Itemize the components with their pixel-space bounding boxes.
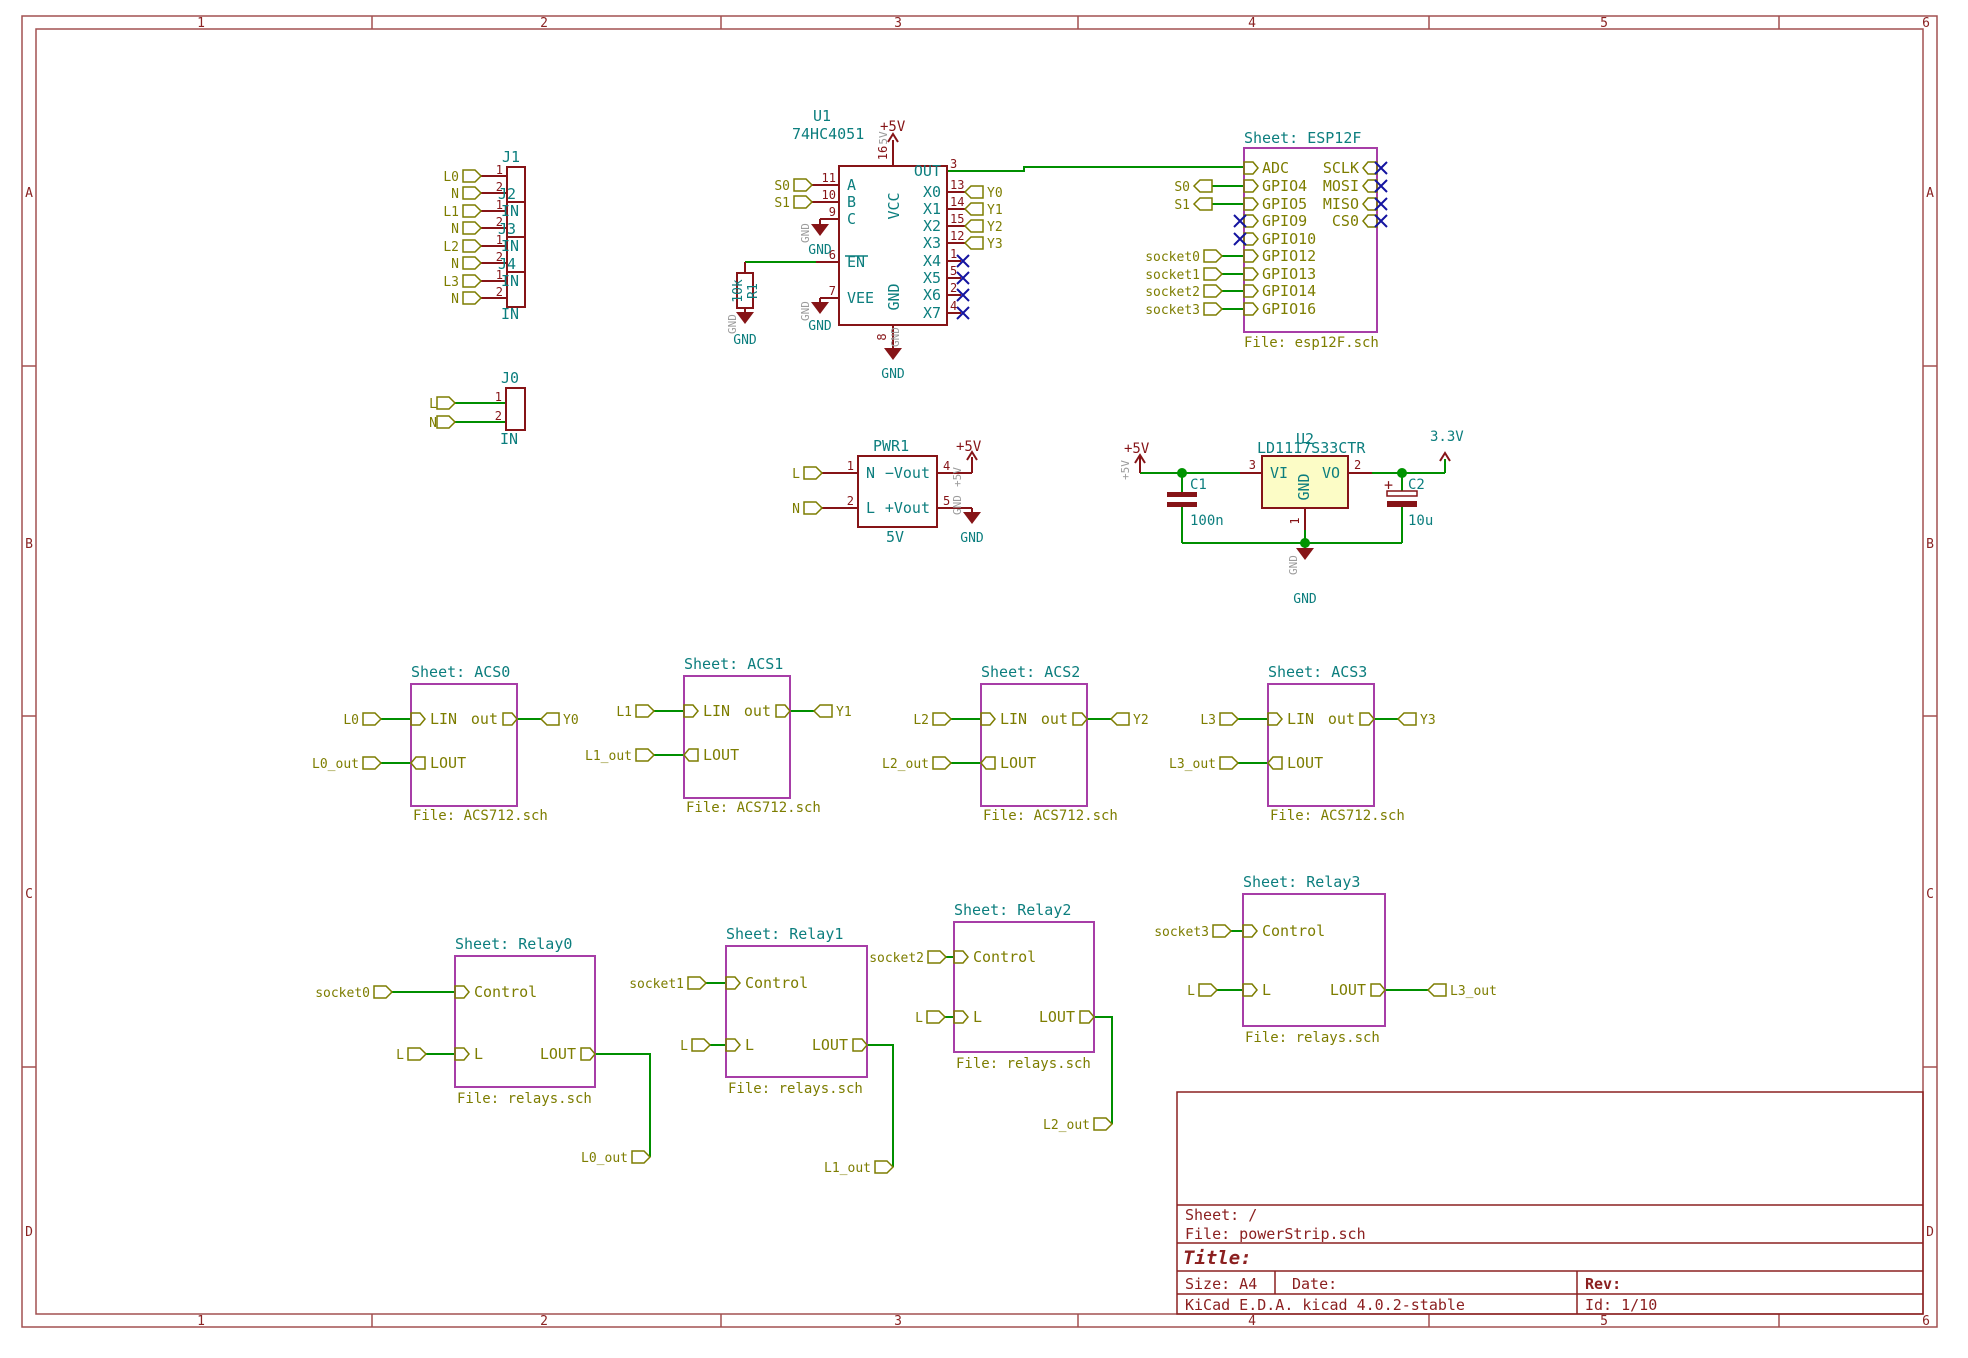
frame-outer	[22, 16, 1937, 1327]
hlabel-l-j0: L	[429, 397, 437, 412]
hier-label-glyph	[804, 467, 822, 479]
relay2-pin-control: Control	[973, 948, 1036, 966]
sheet-relay3-name: Sheet: Relay3	[1243, 873, 1360, 891]
border-row-a-right: A	[1926, 186, 1934, 201]
sheet-relay3-box	[1243, 894, 1385, 1026]
hlabel-l-relay2: L	[915, 1011, 923, 1026]
hier-label-glyph	[1204, 303, 1222, 315]
hier-label-glyph	[965, 186, 983, 198]
j2-pin2-num: 2	[496, 215, 503, 229]
sheet-acs0-file: File: ACS712.sch	[413, 808, 548, 824]
hlabel-l2: L2	[443, 240, 459, 255]
wire-relay0-lout	[595, 1054, 650, 1157]
hlabel-n-pwr1: N	[792, 502, 800, 517]
relay2-pin-lout: LOUT	[1039, 1008, 1075, 1026]
hier-label-glyph	[965, 220, 983, 232]
hier-label-glyph	[408, 1048, 426, 1060]
hlabel-s0-u1: S0	[774, 179, 790, 194]
sheet-pin-glyph	[1244, 198, 1258, 210]
relay1-pin-lout: LOUT	[812, 1036, 848, 1054]
sheet-relay0-file: File: relays.sch	[457, 1091, 592, 1107]
hier-label-glyph	[688, 977, 706, 989]
hlabel-l-relay1: L	[680, 1039, 688, 1054]
sheet-acs1-name: Sheet: ACS1	[684, 655, 783, 673]
pwr1-ghost-5v: +5V	[951, 467, 964, 487]
hlabel-l1out-acs: L1_out	[585, 749, 632, 764]
sheet-pin-glyph	[684, 749, 698, 761]
c2-ref: C2	[1408, 477, 1425, 493]
hlabel-socket2-relay: socket2	[869, 951, 924, 966]
c1-plate-bottom	[1167, 502, 1197, 507]
hlabel-socket1-relay: socket1	[629, 977, 684, 992]
hier-label-glyph	[1204, 285, 1222, 297]
hlabel-y2-acs: Y2	[1133, 713, 1149, 728]
hlabel-socket2-esp: socket2	[1145, 285, 1200, 300]
u2-num-1: 1	[1288, 517, 1302, 524]
hlabel-l1-acs: L1	[616, 705, 632, 720]
u2-pin-vo: VO	[1322, 464, 1340, 482]
hlabel-n-2: N	[451, 222, 459, 237]
hier-label-glyph	[437, 416, 455, 428]
esp-pin-sclk: SCLK	[1323, 159, 1359, 177]
u1-gnd-c: GND	[808, 243, 832, 258]
pwr1-value: 5V	[886, 528, 904, 546]
u1-num-11: 11	[822, 171, 836, 185]
j4-pin1-num: 1	[496, 268, 503, 282]
border-col-3-top: 3	[894, 16, 902, 31]
sheet-relay2-name: Sheet: Relay2	[954, 901, 1071, 919]
sheet-relay1-file: File: relays.sch	[728, 1081, 863, 1097]
hlabel-l1: L1	[443, 205, 459, 220]
acs2-pin-lin: LIN	[1000, 710, 1027, 728]
u1-pin-x3: X3	[923, 234, 941, 252]
sheet-pin-glyph	[503, 713, 517, 725]
pwr1-num-5: 5	[943, 494, 950, 508]
c1-value: 100n	[1190, 513, 1224, 529]
sheet-acs2-file: File: ACS712.sch	[983, 808, 1118, 824]
sheet-relay3-file: File: relays.sch	[1245, 1030, 1380, 1046]
hier-label-glyph	[965, 203, 983, 215]
u1-num-16: 16	[876, 146, 890, 160]
c2-plus: +	[1384, 476, 1393, 494]
pwr1-pin-mvout: −Vout	[885, 464, 930, 482]
u2-ghost-gnd: GND	[1287, 555, 1300, 575]
sheet-acs1-box	[684, 676, 790, 798]
j0-value: IN	[500, 430, 518, 448]
u1-num-9: 9	[829, 205, 836, 219]
hlabel-l3out-relay: L3_out	[1450, 984, 1497, 999]
title-block-outline	[1177, 1092, 1923, 1314]
r1-value: 10k	[731, 279, 746, 303]
u1-pin-x7: X7	[923, 304, 941, 322]
relay2-pin-l: L	[973, 1008, 982, 1026]
hlabel-socket1-esp: socket1	[1145, 268, 1200, 283]
sheet-pin-glyph	[776, 705, 790, 717]
hier-label-glyph	[463, 187, 481, 199]
esp-pin-mosi: MOSI	[1323, 177, 1359, 195]
hier-label-glyph	[1199, 984, 1217, 996]
u1-pin-x2: X2	[923, 217, 941, 235]
hier-label-glyph	[463, 170, 481, 182]
border-col-5-top: 5	[1600, 16, 1608, 31]
border-row-d-left: D	[25, 1225, 33, 1240]
sheet-acs2-box	[981, 684, 1087, 806]
r1-ghost-gnd: GND	[726, 314, 739, 334]
hlabel-socket0-relay: socket0	[315, 986, 370, 1001]
relay0-pin-l: L	[474, 1045, 483, 1063]
j0-body	[506, 388, 525, 430]
u1-gnd-bottom: GND	[881, 367, 905, 382]
esp-pin-gpio10: GPIO10	[1262, 230, 1316, 248]
relay0-pin-control: Control	[474, 983, 537, 1001]
esp-pin-gpio13: GPIO13	[1262, 265, 1316, 283]
sheet-pin-glyph	[726, 1039, 740, 1051]
hlabel-l2-acs: L2	[913, 713, 929, 728]
hlabel-y0-acs: Y0	[563, 713, 579, 728]
pwr1-gnd-symbol	[963, 512, 981, 524]
sheet-pin-glyph	[1268, 757, 1282, 769]
hier-label-glyph	[374, 986, 392, 998]
u1-num-12: 12	[950, 229, 964, 243]
sheet-acs0-name: Sheet: ACS0	[411, 663, 510, 681]
u1-pin-vee: VEE	[847, 289, 874, 307]
border-col-6-top: 6	[1922, 16, 1930, 31]
esp-pin-miso: MISO	[1323, 195, 1359, 213]
sheet-pin-glyph	[726, 977, 740, 989]
j1-value: IN	[501, 202, 519, 220]
hlabel-y1-u1: Y1	[987, 203, 1003, 218]
text-labels-layer: 123456123456ABCDABCDSheet: /File: powerS…	[25, 16, 1934, 1329]
u1-pin-out: OUT	[914, 162, 941, 180]
sheet-pin-glyph	[1243, 925, 1257, 937]
hier-label-glyph	[463, 292, 481, 304]
u1-num-14: 14	[950, 195, 964, 209]
hlabel-n-3: N	[451, 257, 459, 272]
pwr1-num-2: 2	[847, 494, 854, 508]
hier-label-glyph	[632, 1151, 650, 1163]
sheet-pin-glyph	[981, 757, 995, 769]
hlabel-n-j0: N	[429, 416, 437, 431]
hlabel-socket3-relay: socket3	[1154, 925, 1209, 940]
hlabel-l0-acs: L0	[343, 713, 359, 728]
title-block	[1177, 1092, 1923, 1314]
hier-label-glyph	[927, 1011, 945, 1023]
hlabel-y3-u1: Y3	[987, 237, 1003, 252]
junction-c2	[1397, 468, 1407, 478]
pwr1-num-1: 1	[847, 459, 854, 473]
u1-value: 74HC4051	[792, 125, 864, 143]
relay3-pin-lout: LOUT	[1330, 981, 1366, 999]
u2-value: LD1117S33CTR	[1257, 439, 1366, 457]
sheet-acs0-box	[411, 684, 517, 806]
acs0-pin-lout: LOUT	[430, 754, 466, 772]
relay1-pin-l: L	[745, 1036, 754, 1054]
hlabel-y3-acs: Y3	[1420, 713, 1436, 728]
hlabel-l-pwr1: L	[792, 467, 800, 482]
sheet-pin-glyph	[1363, 198, 1377, 210]
hlabel-n-1: N	[451, 187, 459, 202]
sheet-pin-glyph	[981, 713, 995, 725]
titleblock-size: Size: A4	[1185, 1275, 1257, 1293]
sheet-pin-glyph	[1244, 180, 1258, 192]
esp-pin-gpio12: GPIO12	[1262, 247, 1316, 265]
sheet-pin-glyph	[1371, 984, 1385, 996]
border-row-d-right: D	[1926, 1225, 1934, 1240]
u1-num-10: 10	[822, 188, 836, 202]
hlabel-l-relay3: L	[1187, 984, 1195, 999]
titleblock-rev: Rev:	[1585, 1275, 1621, 1293]
u2-ghost-5v: +5V	[1119, 460, 1132, 480]
hier-label-glyph	[1398, 713, 1416, 725]
u1-ghost-5v: 5V	[877, 131, 890, 145]
sheet-pin-glyph	[455, 986, 469, 998]
hlabel-s0-esp: S0	[1174, 180, 1190, 195]
hlabel-l2out-relay: L2_out	[1043, 1118, 1090, 1133]
sheet-acs2-name: Sheet: ACS2	[981, 663, 1080, 681]
hier-label-glyph	[463, 240, 481, 252]
pwr1-ref: PWR1	[873, 437, 909, 455]
j0-ref: J0	[501, 369, 519, 387]
u1-num-3: 3	[950, 157, 957, 171]
sheet-relay2-box	[954, 922, 1094, 1052]
acs0-pin-lin: LIN	[430, 710, 457, 728]
hier-label-glyph	[636, 749, 654, 761]
hier-label-glyph	[1094, 1118, 1112, 1130]
acs1-pin-out: out	[744, 702, 771, 720]
border-col-2-bot: 2	[540, 1314, 548, 1329]
hlabel-y0-u1: Y0	[987, 186, 1003, 201]
hier-label-glyph	[1194, 180, 1212, 192]
u1-num-1: 1	[950, 247, 957, 261]
hier-label-glyph	[636, 705, 654, 717]
relay0-pin-lout: LOUT	[540, 1045, 576, 1063]
pwr1-pin-pvout: +Vout	[885, 499, 930, 517]
hlabel-socket0-esp: socket0	[1145, 250, 1200, 265]
sheet-pin-glyph	[1268, 713, 1282, 725]
u2-pin-vi: VI	[1270, 464, 1288, 482]
j1-pin2-num: 2	[496, 180, 503, 194]
titleblock-title: Title:	[1183, 1247, 1252, 1269]
esp-pin-gpio14: GPIO14	[1262, 282, 1316, 300]
u1-pin-b: B	[847, 193, 856, 211]
border-col-1-top: 1	[197, 16, 205, 31]
u1-ref: U1	[813, 107, 831, 125]
r1-gnd: GND	[733, 333, 757, 348]
sheet-pin-glyph	[1073, 713, 1087, 725]
c2-plate-bottom	[1387, 501, 1417, 507]
sheet-relay1-box	[726, 946, 867, 1077]
hier-label-glyph	[692, 1039, 710, 1051]
sheet-relay0-box	[455, 956, 595, 1087]
junction-c1	[1177, 468, 1187, 478]
sheet-pin-glyph	[1244, 303, 1258, 315]
hlabel-l3-acs: L3	[1200, 713, 1216, 728]
u1-num-15: 15	[950, 212, 964, 226]
u1-pin-x4: X4	[923, 252, 941, 270]
u1-pin-x6: X6	[923, 286, 941, 304]
c2-value: 10u	[1408, 513, 1433, 529]
acs1-pin-lin: LIN	[703, 702, 730, 720]
sheet-relay1-name: Sheet: Relay1	[726, 925, 843, 943]
esp-pin-gpio9: GPIO9	[1262, 212, 1307, 230]
sheet-pin-glyph	[1244, 233, 1258, 245]
j0-pin1-num: 1	[495, 390, 502, 404]
pwr1-ghost-gnd: GND	[951, 495, 964, 515]
j2-value: IN	[501, 237, 519, 255]
hier-label-glyph	[928, 951, 946, 963]
sheet-relay0-name: Sheet: Relay0	[455, 935, 572, 953]
wire-relay2-lout	[1094, 1017, 1112, 1124]
pwr1-pin-n: N	[866, 464, 875, 482]
u1-pin-en: EN	[847, 253, 865, 271]
sheet-pin-glyph	[1244, 162, 1258, 174]
sheet-esp12f-name: Sheet: ESP12F	[1244, 129, 1361, 147]
j3-value: IN	[501, 272, 519, 290]
sheet-pin-glyph	[1363, 162, 1377, 174]
sheet-pin-glyph	[411, 713, 425, 725]
border-col-2-top: 2	[540, 16, 548, 31]
u1-pin-x1: X1	[923, 200, 941, 218]
u1-pin-vcc: VCC	[885, 192, 903, 219]
sheet-acs1-file: File: ACS712.sch	[686, 800, 821, 816]
j0-pin2-num: 2	[495, 409, 502, 423]
hier-label-glyph	[1220, 713, 1238, 725]
hlabel-l2out-acs: L2_out	[882, 757, 929, 772]
u2-pin-gnd: GND	[1295, 473, 1313, 500]
u1-pin-x5: X5	[923, 269, 941, 287]
j2-pin1-num: 1	[496, 198, 503, 212]
hier-label-glyph	[1111, 713, 1129, 725]
relay1-pin-control: Control	[745, 974, 808, 992]
sheet-pin-glyph	[581, 1048, 595, 1060]
hlabel-l0: L0	[443, 170, 459, 185]
hier-label-glyph	[804, 502, 822, 514]
border-col-5-bot: 5	[1600, 1314, 1608, 1329]
border-row-a-left: A	[25, 186, 33, 201]
hier-label-glyph	[1428, 984, 1446, 996]
sheet-pin-glyph	[1243, 984, 1257, 996]
junction-gnd	[1300, 538, 1310, 548]
hier-label-glyph	[1204, 250, 1222, 262]
u2-num-2: 2	[1354, 458, 1361, 472]
u1-pin-x0: X0	[923, 183, 941, 201]
u1-num-2: 2	[950, 281, 957, 295]
sheet-acs3-name: Sheet: ACS3	[1268, 663, 1367, 681]
j3-pin1-num: 1	[496, 233, 503, 247]
c1-ref: C1	[1190, 477, 1207, 493]
border-col-4-top: 4	[1248, 16, 1256, 31]
hier-label-glyph	[933, 757, 951, 769]
j3-pin2-num: 2	[496, 250, 503, 264]
j4-pin2-num: 2	[496, 285, 503, 299]
hier-label-glyph	[541, 713, 559, 725]
u1-num-4: 4	[950, 299, 957, 313]
hlabel-l3: L3	[443, 275, 459, 290]
hier-label-glyph	[1194, 198, 1212, 210]
page-frame	[22, 16, 1937, 1327]
hlabel-l1out-relay: L1_out	[824, 1161, 871, 1176]
acs3-pin-lout: LOUT	[1287, 754, 1323, 772]
j4-value: IN	[501, 305, 519, 323]
u1-gnd-symbol-vee	[811, 302, 829, 314]
acs2-pin-out: out	[1041, 710, 1068, 728]
u1-gnd-symbol-bottom	[884, 348, 902, 360]
relay3-pin-l: L	[1262, 981, 1271, 999]
pwr1-num-4: 4	[943, 459, 950, 473]
esp-pin-gpio4: GPIO4	[1262, 177, 1307, 195]
hlabel-socket3-esp: socket3	[1145, 303, 1200, 318]
hier-label-glyph	[1220, 757, 1238, 769]
esp-pin-adc: ADC	[1262, 159, 1289, 177]
u1-ghost-gnd-vee: GND	[799, 301, 812, 321]
hier-label-glyph	[363, 713, 381, 725]
hier-label-glyph	[1204, 268, 1222, 280]
sheet-pin-glyph	[1363, 180, 1377, 192]
border-col-4-bot: 4	[1248, 1314, 1256, 1329]
sheet-pin-glyph	[1244, 285, 1258, 297]
u1-pin-c: C	[847, 210, 856, 228]
border-col-6-bot: 6	[1922, 1314, 1930, 1329]
acs3-pin-out: out	[1328, 710, 1355, 728]
pwr1-5v-label: +5V	[956, 439, 982, 455]
hlabel-y1-acs: Y1	[836, 705, 852, 720]
sheet-acs3-file: File: ACS712.sch	[1270, 808, 1405, 824]
u1-num-7: 7	[829, 284, 836, 298]
u2-5v-label: +5V	[1124, 441, 1150, 457]
hlabel-l-relay0: L	[396, 1048, 404, 1063]
sheet-pin-glyph	[1360, 713, 1374, 725]
sheet-pin-glyph	[455, 1048, 469, 1060]
esp-pin-cs0: CS0	[1332, 212, 1359, 230]
acs0-pin-out: out	[471, 710, 498, 728]
border-row-b-left: B	[25, 537, 33, 552]
u1-num-5: 5	[950, 264, 957, 278]
titleblock-sheet: Sheet: /	[1185, 1206, 1257, 1224]
hlabel-n-4: N	[451, 292, 459, 307]
sheet-pin-glyph	[1080, 1011, 1094, 1023]
sheet-pin-glyph	[954, 1011, 968, 1023]
hier-label-glyph	[437, 397, 455, 409]
r1-ref: R1	[746, 283, 761, 299]
sheet-relay2-file: File: relays.sch	[956, 1056, 1091, 1072]
u2-gnd-label: GND	[1293, 592, 1317, 607]
hier-label-glyph	[794, 196, 812, 208]
u1-ghost-gnd-c: GND	[799, 223, 812, 243]
wire-relay1-lout	[867, 1045, 893, 1167]
u2-num-3: 3	[1249, 458, 1256, 472]
acs3-pin-lin: LIN	[1287, 710, 1314, 728]
hier-label-glyph	[463, 275, 481, 287]
hier-label-glyph	[933, 713, 951, 725]
hlabel-l0out-relay: L0_out	[581, 1151, 628, 1166]
sheet-pin-glyph	[1244, 215, 1258, 227]
hier-label-glyph	[875, 1161, 893, 1173]
hier-label-glyph	[463, 257, 481, 269]
j1-ref: J1	[502, 148, 520, 166]
sheet-pin-glyph	[411, 757, 425, 769]
esp-pin-gpio5: GPIO5	[1262, 195, 1307, 213]
hlabel-l3out-acs: L3_out	[1169, 757, 1216, 772]
schematic-canvas[interactable]: 123456123456ABCDABCDSheet: /File: powerS…	[0, 0, 1968, 1354]
hier-label-glyph	[965, 237, 983, 249]
hlabel-s1-u1: S1	[774, 196, 790, 211]
hlabel-l0out-acs: L0_out	[312, 757, 359, 772]
hier-label-glyph	[814, 705, 832, 717]
sheet-esp12f-file: File: esp12F.sch	[1244, 335, 1379, 351]
sheet-pin-glyph	[1244, 250, 1258, 262]
sheet-pin-glyph	[684, 705, 698, 717]
schematic-drawing: 123456123456ABCDABCDSheet: /File: powerS…	[0, 0, 1968, 1354]
